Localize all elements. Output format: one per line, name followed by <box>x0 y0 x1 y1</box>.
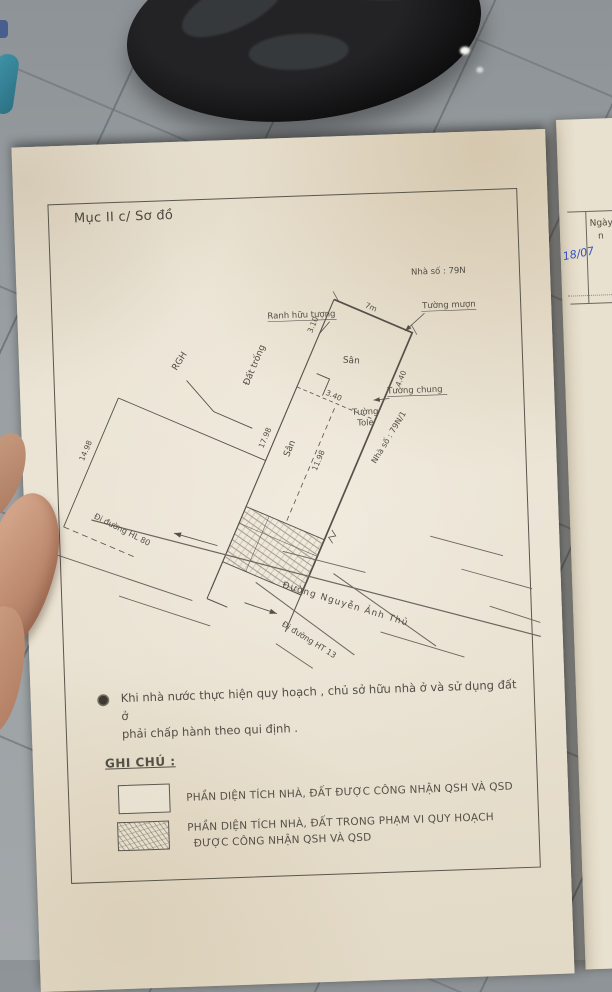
house-number-label: Nhà số : 79N <box>411 265 466 278</box>
document-page: Mục II c/ Sơ đồ <box>11 129 574 992</box>
legend-swatch-hatched <box>117 820 170 851</box>
blue-object <box>0 20 8 38</box>
dim-1798: 17.98 <box>257 426 274 449</box>
shared-wall-leader <box>373 399 389 401</box>
table-line <box>567 210 612 213</box>
to-road-hl80-label: Đi đường HL 80 <box>92 511 152 548</box>
dark-disc-object <box>116 0 492 141</box>
direction-arrow-ht13 <box>244 602 276 615</box>
strip-yard-label: Sân <box>282 439 298 458</box>
break-symbol <box>327 530 337 543</box>
rgh-label: RGH <box>170 350 189 372</box>
dim-1498: 14.98 <box>77 439 94 462</box>
disc-highlight <box>476 66 484 73</box>
tole-wall-label-2: Tole <box>356 418 374 429</box>
dim-340: 3.40 <box>324 388 343 403</box>
dim-top-edge: 7m <box>364 301 379 314</box>
street-edge-lower-left <box>58 551 193 606</box>
disc-slot <box>309 0 432 5</box>
tole-wall-label-1: Tường <box>351 406 379 418</box>
planning-zone-hatched <box>223 507 325 595</box>
teal-object <box>0 53 20 115</box>
legend-title: GHI CHÚ : <box>105 754 176 770</box>
handwritten-date: 18/07 <box>562 244 596 263</box>
street-edge-upper <box>91 504 540 651</box>
dim-1198: 11.98 <box>310 449 327 472</box>
empty-land-label: Đất trống <box>241 343 268 387</box>
right-page-header-cont: n <box>598 231 604 241</box>
legend-swatch-plain <box>118 783 171 814</box>
to-road-ht13-label: Đi đường HT 13 <box>280 619 338 661</box>
site-plan-drawing: 7m Sân 3.40 3.10 17.98 11.98 Sân 4.40 Đấ… <box>22 236 547 704</box>
disc-highlight <box>459 46 470 55</box>
table-line <box>570 302 612 305</box>
parcel-group: 7m Sân 3.40 3.10 17.98 11.98 Sân 4.40 Đấ… <box>47 236 428 636</box>
borrowed-wall-leader <box>404 313 425 331</box>
rgh-leader <box>187 378 253 430</box>
dotted-rule <box>568 294 612 297</box>
borrowed-wall-label: Tường mượn <box>421 298 476 311</box>
interior-dashed-line <box>286 408 335 523</box>
direction-arrow-hl80 <box>174 532 217 547</box>
yard-label: Sân <box>343 356 360 367</box>
right-page-header: Ngày <box>589 218 612 229</box>
disc-slot <box>248 31 350 72</box>
house-number-2-label: Nhà số : 79N/1 <box>369 409 408 465</box>
